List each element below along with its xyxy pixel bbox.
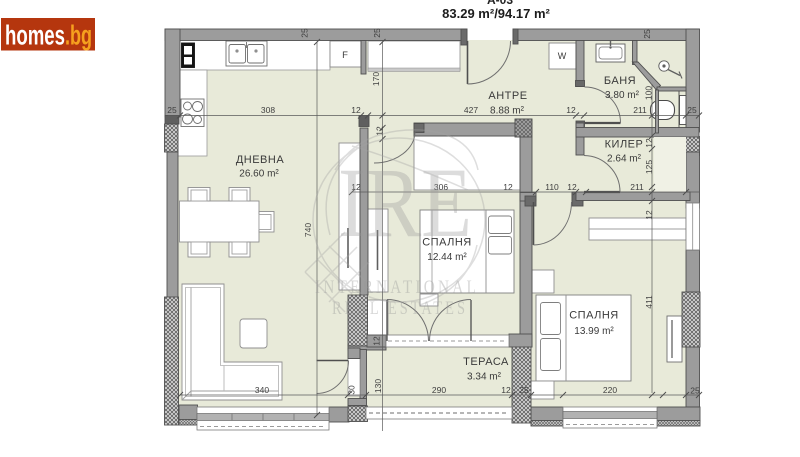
svg-text:ТЕРАСА: ТЕРАСА [463, 356, 509, 368]
svg-text:13.99 m²: 13.99 m² [574, 326, 614, 337]
svg-text:СПАЛНЯ: СПАЛНЯ [569, 310, 619, 322]
svg-text:12: 12 [644, 210, 654, 220]
svg-text:30: 30 [347, 385, 357, 395]
svg-text:homes: homes [5, 20, 65, 51]
svg-text:2.64 m²: 2.64 m² [607, 154, 642, 165]
svg-text:100: 100 [644, 86, 654, 100]
svg-text:211: 211 [630, 182, 644, 192]
svg-text:110: 110 [545, 182, 559, 192]
svg-text:12: 12 [566, 105, 576, 115]
svg-text:411: 411 [644, 295, 654, 309]
svg-text:АНТРЕ: АНТРЕ [488, 90, 527, 102]
svg-text:12: 12 [372, 336, 382, 346]
svg-text:25: 25 [687, 105, 697, 115]
svg-text:W: W [558, 51, 567, 61]
svg-text:INTERNATIONAL: INTERNATIONAL [315, 277, 479, 298]
svg-text:3.80 m²: 3.80 m² [605, 90, 640, 101]
svg-text:740: 740 [303, 223, 313, 237]
svg-text:170: 170 [371, 72, 381, 86]
svg-text:12: 12 [351, 105, 361, 115]
svg-text:REAL ESTATES: REAL ESTATES [332, 298, 468, 319]
svg-text:26.60 m²: 26.60 m² [239, 169, 279, 180]
svg-text:25: 25 [372, 28, 382, 38]
svg-text:25: 25 [300, 28, 310, 38]
svg-text:25: 25 [690, 386, 700, 396]
svg-text:БАНЯ: БАНЯ [604, 75, 636, 87]
svg-text:308: 308 [261, 105, 275, 115]
svg-text:ДНЕВНА: ДНЕВНА [236, 154, 285, 166]
svg-text:427: 427 [464, 105, 478, 115]
svg-text:12: 12 [644, 138, 654, 148]
svg-text:F: F [342, 50, 348, 61]
svg-text:12: 12 [567, 182, 577, 192]
svg-text:220: 220 [603, 385, 617, 395]
svg-text:25: 25 [642, 29, 652, 39]
svg-text:8.88 m²: 8.88 m² [490, 106, 525, 117]
svg-text:340: 340 [255, 385, 269, 395]
svg-text:12: 12 [503, 182, 513, 192]
svg-text:3.34 m²: 3.34 m² [467, 372, 502, 383]
svg-text:25: 25 [167, 105, 177, 115]
svg-text:83.29 m²/94.17 m²: 83.29 m²/94.17 m² [442, 6, 550, 21]
svg-text:КИЛЕР: КИЛЕР [605, 139, 644, 151]
svg-text:211: 211 [633, 105, 647, 115]
svg-text:290: 290 [432, 385, 446, 395]
svg-text:25: 25 [519, 385, 529, 395]
svg-text:12: 12 [501, 385, 511, 395]
svg-text:125: 125 [644, 160, 654, 174]
svg-text:.bg: .bg [65, 20, 92, 51]
svg-text:130: 130 [373, 379, 383, 393]
